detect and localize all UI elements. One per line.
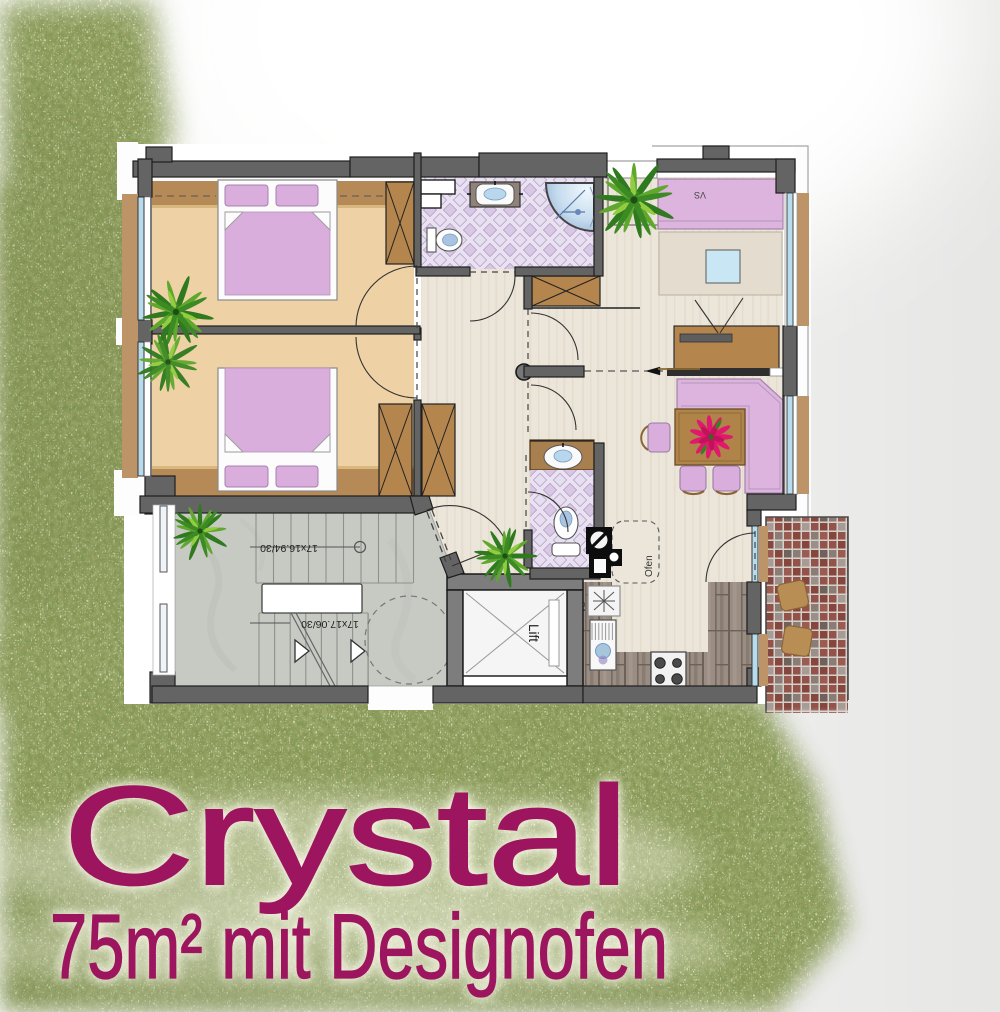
svg-text:17x16.94/30: 17x16.94/30 <box>260 542 318 554</box>
svg-text:17x17.06/30: 17x17.06/30 <box>301 618 359 630</box>
svg-text:Lift: Lift <box>526 624 541 642</box>
svg-text:Ofen: Ofen <box>644 555 655 577</box>
svg-text:Crystal: Crystal <box>63 757 629 914</box>
svg-text:VS: VS <box>694 190 706 200</box>
svg-text:75m² mit Designofen: 75m² mit Designofen <box>50 896 668 998</box>
